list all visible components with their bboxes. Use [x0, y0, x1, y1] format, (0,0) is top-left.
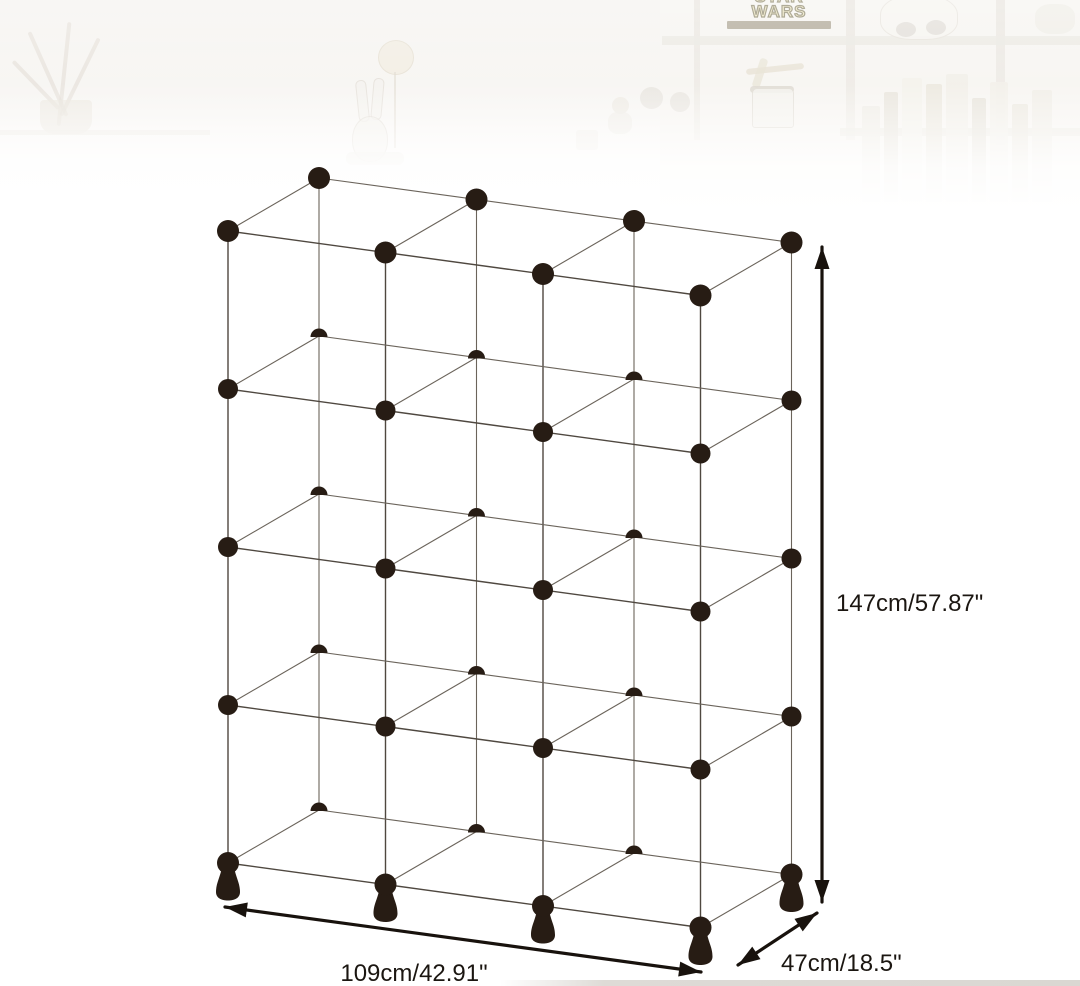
image-bottom-edge: [500, 980, 1080, 986]
back-shelf-edge: [319, 494, 792, 559]
back-shelf-edge: [319, 652, 792, 717]
half-connector-ball: [311, 645, 328, 654]
top-connector-ball: [375, 242, 397, 264]
back-shelf-edge: [319, 178, 792, 243]
front-shelf-edge: [228, 705, 701, 770]
depth-edge: [543, 853, 634, 906]
half-connector-ball: [626, 688, 643, 697]
depth-edge: [386, 832, 477, 885]
half-connector-ball: [311, 487, 328, 496]
half-connector-ball: [626, 530, 643, 539]
cube-organizer-diagram-svg: 147cm/57.87" 109cm/42.91" 47cm/18.5": [0, 0, 1080, 986]
foot-connector: [217, 852, 239, 874]
half-connector-ball: [468, 666, 485, 675]
depth-edge: [701, 243, 792, 296]
top-connector-ball: [466, 189, 488, 211]
half-connector-ball: [311, 329, 328, 338]
depth-edge: [228, 652, 319, 705]
height-dimension-label: 147cm/57.87": [836, 590, 983, 617]
back-shelf-edge: [319, 810, 792, 875]
top-connector-ball: [308, 167, 330, 189]
top-connector-ball: [532, 263, 554, 285]
connector-ball: [782, 391, 802, 411]
depth-arrowhead: [738, 947, 760, 965]
connector-ball: [533, 738, 553, 758]
front-shelf-edge: [228, 547, 701, 612]
depth-edge: [543, 537, 634, 590]
depth-edge: [701, 559, 792, 612]
connector-ball: [782, 707, 802, 727]
half-connector-ball: [626, 846, 643, 855]
top-connector-ball: [217, 220, 239, 242]
connector-ball: [218, 379, 238, 399]
foot-connector: [532, 895, 554, 917]
connector-ball: [782, 549, 802, 569]
depth-edge: [228, 178, 319, 231]
depth-arrowhead: [795, 913, 817, 931]
top-connector-ball: [623, 210, 645, 232]
depth-edge: [701, 717, 792, 770]
connector-ball: [533, 580, 553, 600]
height-arrowhead: [815, 880, 830, 902]
half-connector-ball: [626, 372, 643, 381]
back-foot-connector: [781, 864, 803, 886]
foot-connector: [375, 874, 397, 896]
half-connector-ball: [468, 824, 485, 833]
depth-edge: [543, 221, 634, 274]
depth-edge: [386, 516, 477, 569]
product-image: STAR WARS 147cm/5: [0, 0, 1080, 986]
depth-edge: [386, 674, 477, 727]
connector-ball: [691, 602, 711, 622]
connector-ball: [218, 695, 238, 715]
depth-edge: [228, 336, 319, 389]
depth-edge: [701, 401, 792, 454]
depth-edge: [228, 810, 319, 863]
connector-ball: [218, 537, 238, 557]
height-arrowhead: [815, 247, 830, 269]
foot-connector: [690, 917, 712, 939]
half-connector-ball: [468, 508, 485, 517]
half-connector-ball: [311, 803, 328, 812]
depth-edge: [386, 200, 477, 253]
connector-ball: [376, 717, 396, 737]
depth-edge: [543, 695, 634, 748]
connector-ball: [691, 444, 711, 464]
depth-edge: [228, 494, 319, 547]
top-connector-ball: [781, 232, 803, 254]
front-shelf-edge: [228, 389, 701, 454]
depth-edge: [543, 379, 634, 432]
width-arrowhead: [225, 903, 248, 918]
connector-ball: [376, 559, 396, 579]
width-dimension-label: 109cm/42.91": [340, 960, 487, 986]
depth-edge: [386, 358, 477, 411]
top-connector-ball: [690, 285, 712, 307]
depth-edge: [701, 875, 792, 928]
front-shelf-edge: [228, 231, 701, 296]
connector-ball: [533, 422, 553, 442]
depth-dimension-label: 47cm/18.5": [781, 950, 902, 977]
connector-ball: [376, 401, 396, 421]
half-connector-ball: [468, 350, 485, 359]
back-shelf-edge: [319, 336, 792, 401]
connector-ball: [691, 760, 711, 780]
